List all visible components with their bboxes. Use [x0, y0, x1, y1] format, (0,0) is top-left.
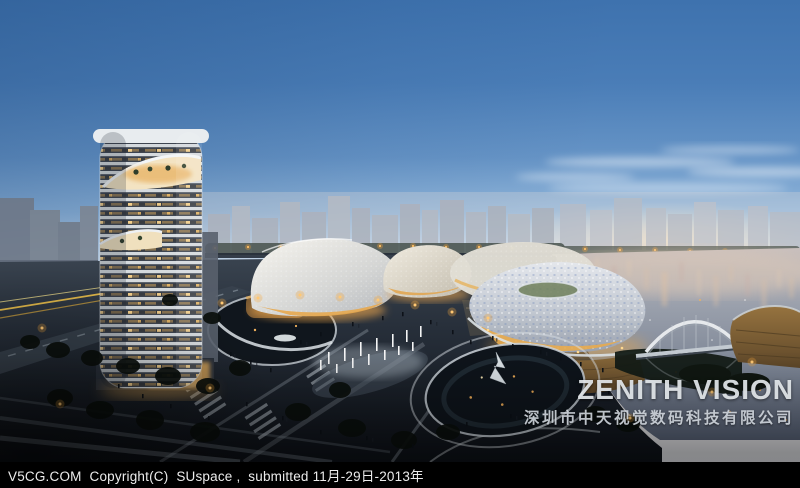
rendered-screenshot: ZENITH VISION 深圳市中天视觉数码科技有限公司 V5CG.COM C… — [0, 0, 800, 488]
architectural-rendering: ZENITH VISION 深圳市中天视觉数码科技有限公司 — [0, 0, 800, 462]
credit-text: V5CG.COM Copyright(C) SUspace , submitte… — [0, 465, 424, 485]
tower — [93, 129, 218, 399]
cloud-streaks — [515, 146, 800, 194]
credit-bar: V5CG.COM Copyright(C) SUspace , submitte… — [0, 462, 800, 488]
render-scene-svg — [0, 0, 800, 462]
